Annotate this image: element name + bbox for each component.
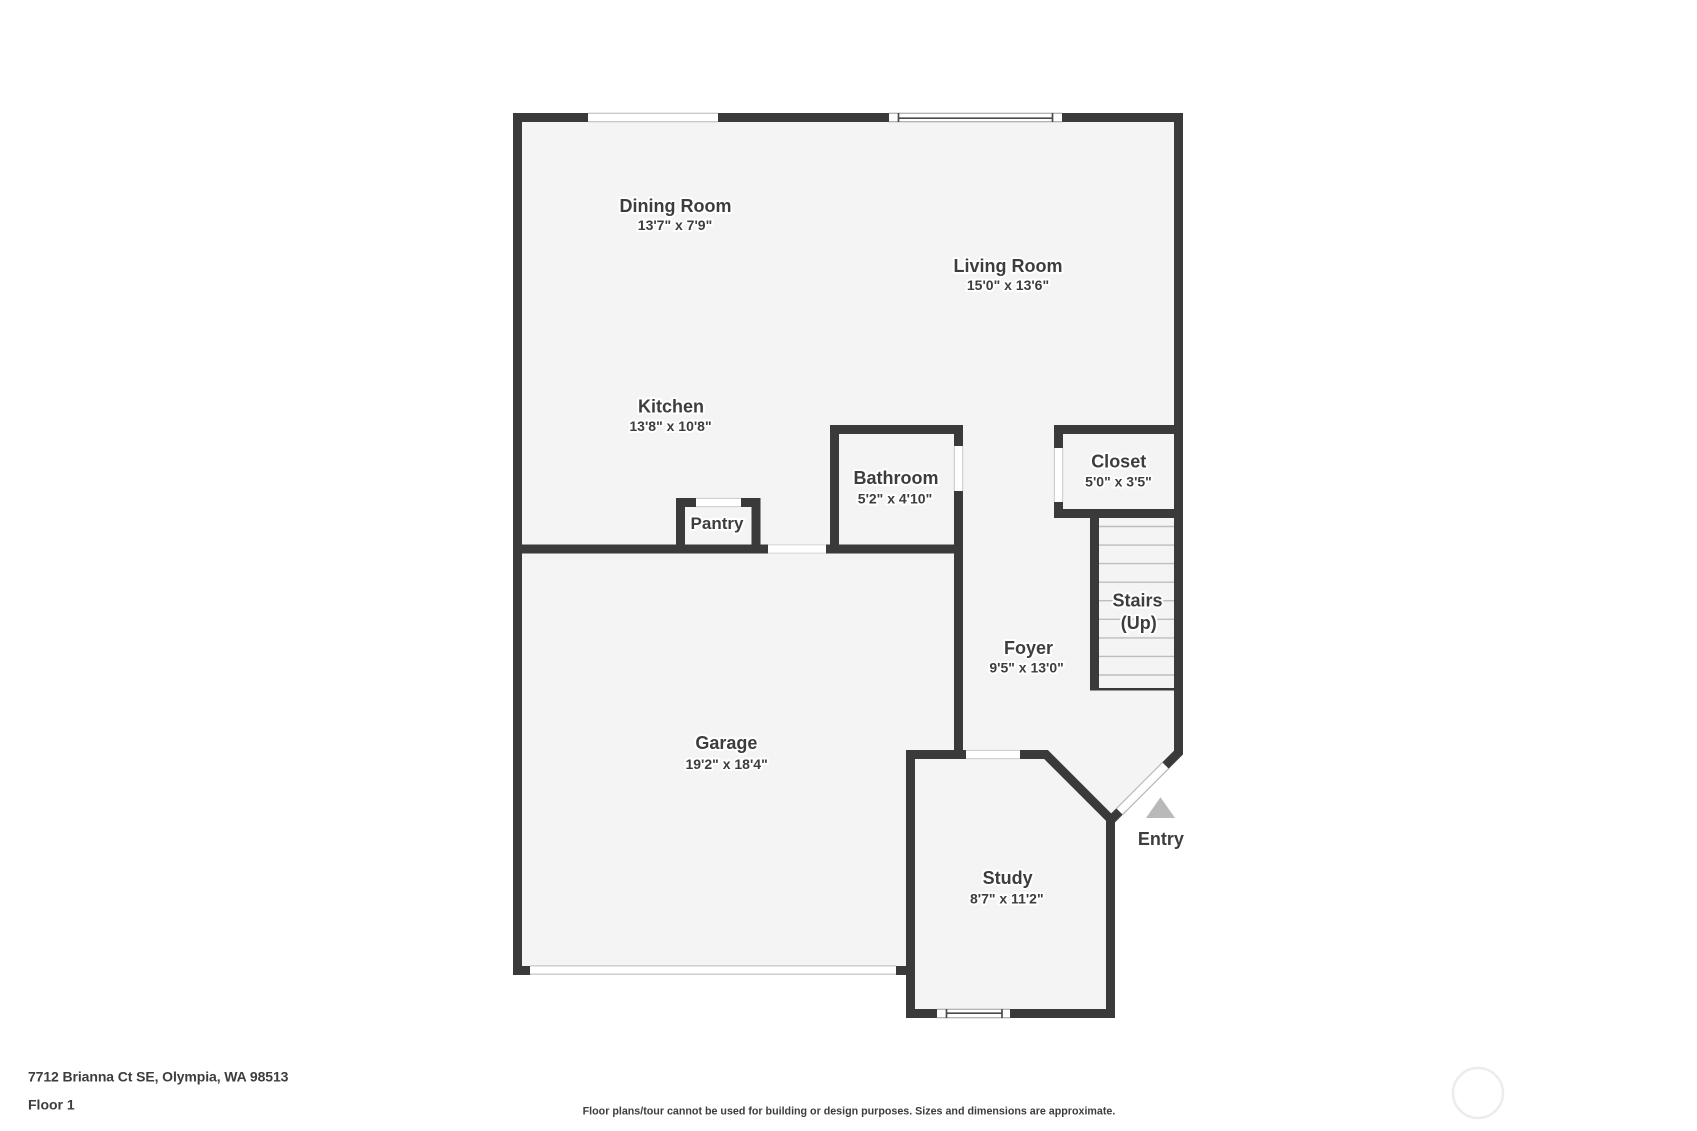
svg-text:Living Room: Living Room (954, 256, 1063, 276)
svg-text:Floor 1: Floor 1 (28, 1096, 75, 1112)
svg-text:Closet: Closet (1091, 452, 1146, 472)
svg-text:8'7" x 11'2": 8'7" x 11'2" (970, 891, 1044, 907)
svg-text:Study: Study (983, 868, 1033, 888)
svg-text:Garage: Garage (695, 733, 757, 753)
svg-text:Kitchen: Kitchen (638, 397, 704, 417)
svg-text:7712 Brianna Ct SE, Olympia, W: 7712 Brianna Ct SE, Olympia, WA 98513 (28, 1068, 289, 1084)
svg-text:Bathroom: Bathroom (854, 468, 939, 488)
svg-text:9'5" x 13'0": 9'5" x 13'0" (989, 659, 1063, 675)
svg-text:Stairs: Stairs (1112, 591, 1162, 611)
svg-text:Pantry: Pantry (691, 514, 744, 533)
svg-text:13'7" x 7'9": 13'7" x 7'9" (638, 217, 712, 233)
svg-text:13'8" x 10'8": 13'8" x 10'8" (629, 418, 711, 434)
svg-text:Floor plans/tour cannot be use: Floor plans/tour cannot be used for buil… (583, 1106, 1116, 1118)
svg-text:Entry: Entry (1138, 829, 1184, 849)
svg-text:15'0" x 13'6": 15'0" x 13'6" (967, 277, 1049, 293)
svg-text:19'2" x 18'4": 19'2" x 18'4" (685, 756, 767, 772)
svg-text:Foyer: Foyer (1004, 638, 1053, 658)
svg-text:5'0" x 3'5": 5'0" x 3'5" (1085, 474, 1152, 490)
svg-text:(Up): (Up) (1121, 613, 1157, 633)
svg-text:Dining Room: Dining Room (620, 196, 732, 216)
svg-text:5'2" x 4'10": 5'2" x 4'10" (858, 491, 932, 507)
